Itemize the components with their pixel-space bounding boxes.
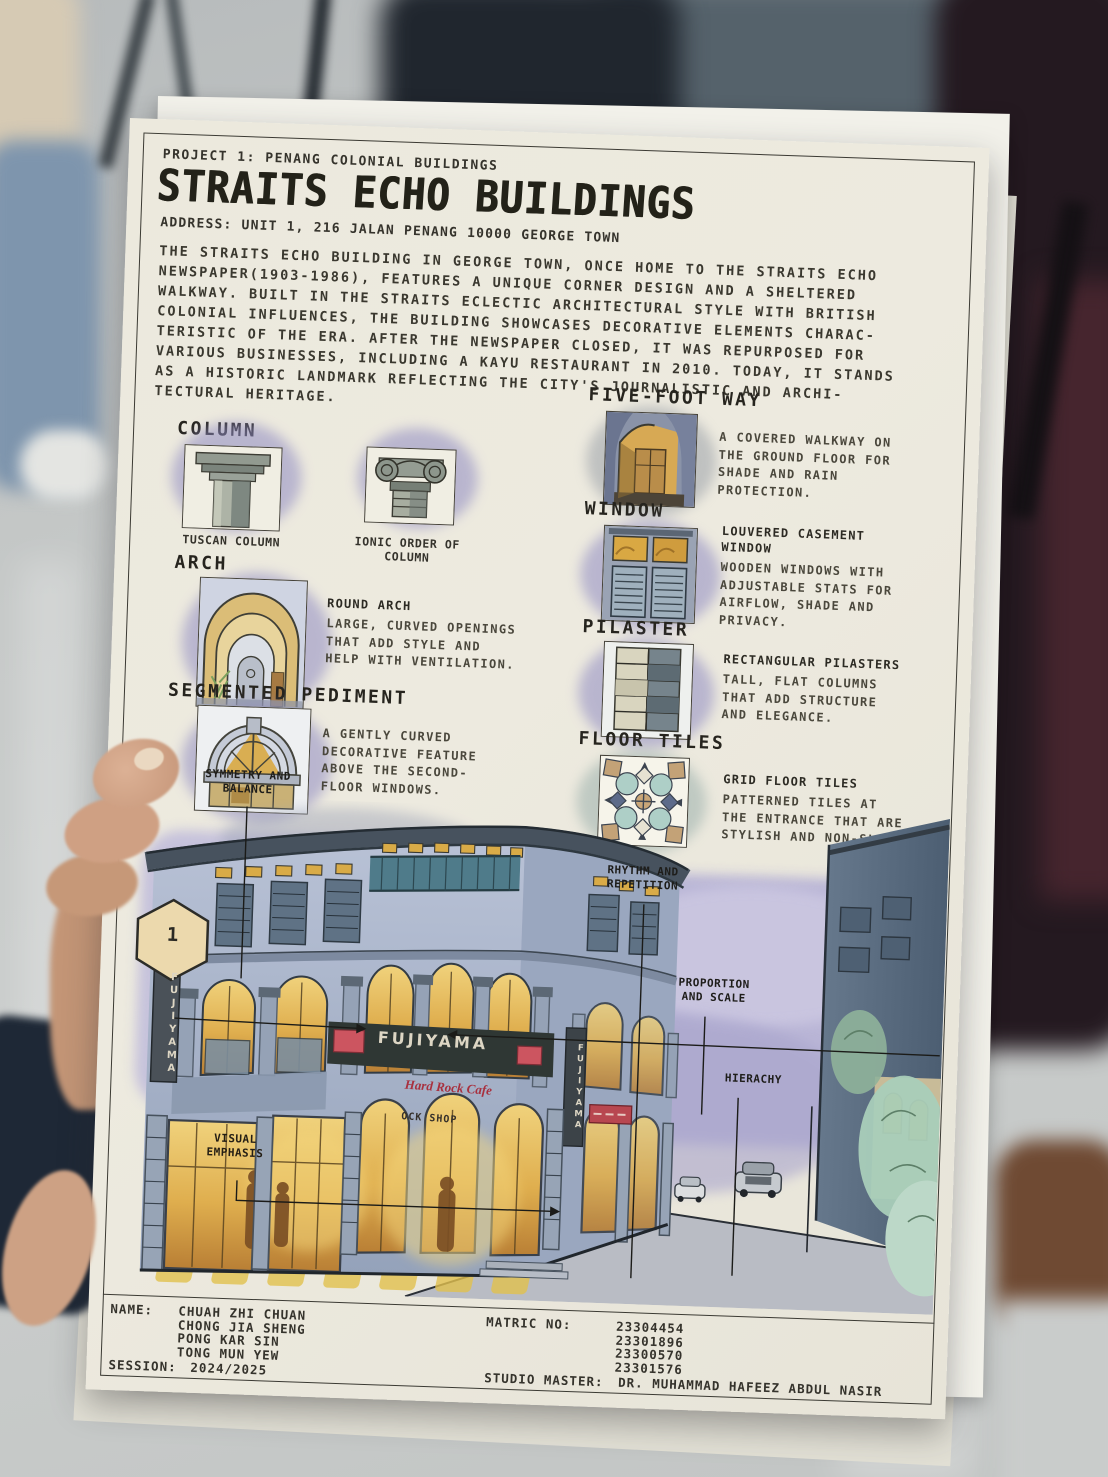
sketch-tuscan-column	[182, 444, 283, 531]
label-visual-emphasis: VISUAL EMPHASIS	[174, 1130, 297, 1161]
heading-window: WINDOW	[584, 498, 665, 522]
background-person-right-bag	[1040, 280, 1108, 900]
right-background-building	[805, 815, 951, 1298]
louvered-window-sketch-svg	[602, 526, 697, 623]
building-illustration-svg	[105, 764, 951, 1315]
building-illustration: SYMMETRY AND BALANCE RHYTHM AND REPETITI…	[105, 764, 951, 1315]
description-paragraph: THE STRAITS ECHO BUILDING IN GEORGE TOWN…	[154, 241, 898, 427]
tuscan-column-sketch-svg	[183, 445, 282, 530]
session-label: SESSION:	[108, 1358, 177, 1374]
heading-pilaster: PILASTER	[582, 616, 689, 641]
five-foot-way-body: A COVERED WALKWAY ON THE GROUND FLOOR FO…	[717, 429, 949, 507]
matric-label: MATRIC NO:	[486, 1315, 572, 1331]
sketch-five-foot-way	[603, 411, 698, 508]
background-brown-shoe	[995, 1140, 1108, 1330]
student-names: CHUAH ZHI CHUAN CHONG JIA SHENG PONG KAR…	[177, 1304, 307, 1362]
pilaster-body: TALL, FLAT COLUMNS THAT ADD STRUCTURE AN…	[721, 671, 943, 731]
name-label: NAME:	[110, 1302, 153, 1317]
arch-body: LARGE, CURVED OPENINGS THAT ADD STYLE AN…	[325, 615, 557, 675]
background-white-shoe	[20, 430, 110, 500]
photo-scene: PROJECT 1: PENANG COLONIAL BUILDINGS STR…	[0, 0, 1108, 1477]
heading-arch: ARCH	[174, 552, 228, 575]
poster-sheet: PROJECT 1: PENANG COLONIAL BUILDINGS STR…	[86, 118, 990, 1419]
label-proportion-and-scale: PROPORTION AND SCALE	[643, 974, 784, 1006]
background-bag-strap	[1007, 200, 1088, 520]
balcony	[369, 851, 520, 896]
five-foot-way-sketch-svg	[604, 412, 697, 507]
ionic-column-sketch-svg	[365, 447, 456, 524]
session-value: 2024/2025	[190, 1361, 267, 1377]
arch-subheading: ROUND ARCH	[327, 595, 412, 614]
fujiyama-vertical-sign-right: FUJIYAMA	[563, 1032, 587, 1143]
background-person-left-top	[0, 0, 80, 200]
matric-numbers: 23304454 23301896 23300570 23301576	[614, 1320, 684, 1376]
sketch-louvered-window	[601, 525, 698, 624]
label-rhythm-and-repetition: RHYTHM AND REPETITION	[567, 862, 718, 894]
red-sign-lettering-marks	[594, 1114, 626, 1115]
hexagon-marker-number: 1	[159, 924, 186, 947]
sketch-ionic-column	[364, 446, 457, 525]
background-floor	[1000, 1300, 1108, 1477]
background-person-left-jeans	[0, 140, 100, 490]
pilaster-sketch-svg	[602, 642, 693, 739]
caption-ionic-column: IONIC ORDER OF COLUMN	[327, 533, 488, 567]
fujiyama-vertical-sign-left: FUJIYAMA	[152, 967, 180, 1080]
window-body: WOODEN WINDOWS WITH ADJUSTABLE STATS FOR…	[719, 559, 951, 637]
sketch-pilaster	[601, 641, 694, 740]
